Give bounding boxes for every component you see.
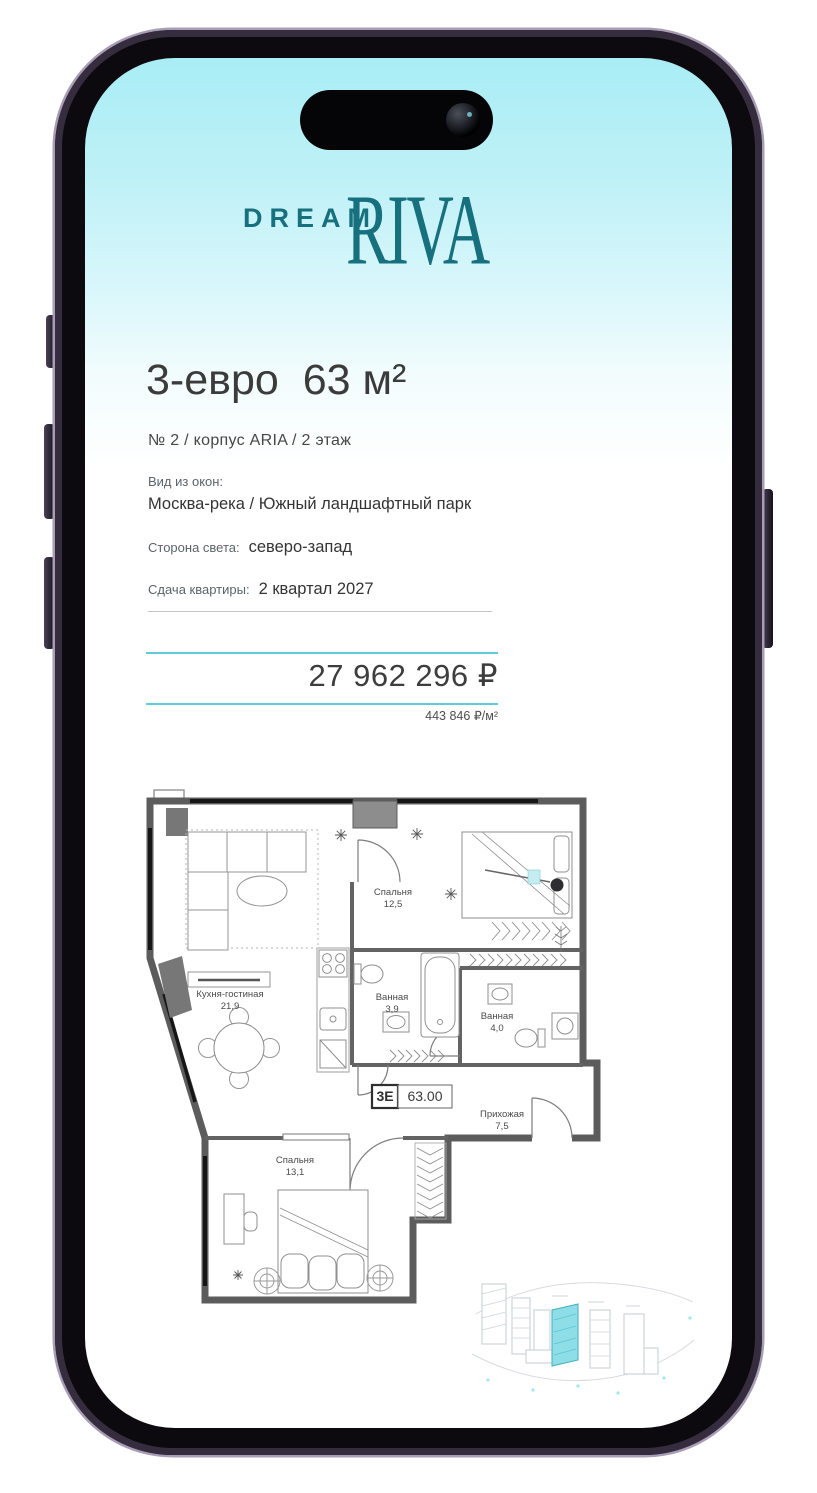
divider-teal-bottom [146,703,498,705]
room-area: 13,1 [286,1167,305,1178]
divider-teal-top [146,652,498,654]
unit-area-text: 63.00 [407,1088,442,1104]
divider-gray [148,611,492,612]
highlighted-building[interactable] [552,1304,578,1366]
cardinal-value: северо-запад [249,538,353,557]
cardinal-row: Сторона света: северо-запад [148,538,352,557]
unit-subtitle: № 2 / корпус ARIA / 2 этаж [148,432,351,450]
phone-screen: DREAM RIVA 3-евро 63 м² № 2 / корпус ARI… [85,58,732,1428]
wall-pillar-topleft [166,808,188,836]
ac-unit-block [353,801,397,828]
room-label: Кухня-гостиная [196,989,263,1000]
room-area: 7,5 [495,1121,508,1132]
room-area: 3,9 [385,1004,398,1015]
room-area: 4,0 [490,1023,503,1034]
room-label: Спальня [374,887,412,898]
room-area: 12,5 [384,899,403,910]
price-per-m2: 443 846 ₽/м² [146,708,498,723]
room-area: 21,9 [221,1001,240,1012]
road-bottom [472,1340,694,1381]
unit-type-text: 3Е [376,1088,393,1104]
page: DREAM RIVA 3-евро 63 м² № 2 / корпус ARI… [0,0,817,1493]
plant-icon [233,1270,243,1280]
view-value: Москва-река / Южный ландшафтный парк [148,495,471,514]
front-camera-icon [446,103,480,137]
road-top [476,1283,693,1314]
livingroom-furniture [186,830,318,1089]
dynamic-island [300,90,493,150]
page-title: 3-евро 63 м² [146,356,406,405]
site-plan-illustration [468,1262,698,1407]
delivery-row: Сдача квартиры: 2 квартал 2027 [148,580,374,599]
price-value: 27 962 296 ₽ [146,658,498,694]
kitchen-fixtures [317,948,349,1072]
room-label: Ванная [481,1011,514,1022]
volume-down-button[interactable] [44,557,55,649]
bedroom1-bed [462,832,572,918]
delivery-value: 2 квартал 2027 [259,580,374,599]
unit-badge: 3Е 63.00 [372,1085,452,1108]
volume-up-button[interactable] [44,424,55,519]
room-label: Спальня [276,1155,314,1166]
logo-riva-text: RIVA [346,180,488,281]
room-label: Ванная [376,992,409,1003]
cardinal-label: Сторона света: [148,540,240,555]
view-label: Вид из окон: [148,474,223,489]
power-button[interactable] [762,489,773,648]
delivery-label: Сдача квартиры: [148,582,250,597]
room-label: Прихожая [480,1109,524,1120]
